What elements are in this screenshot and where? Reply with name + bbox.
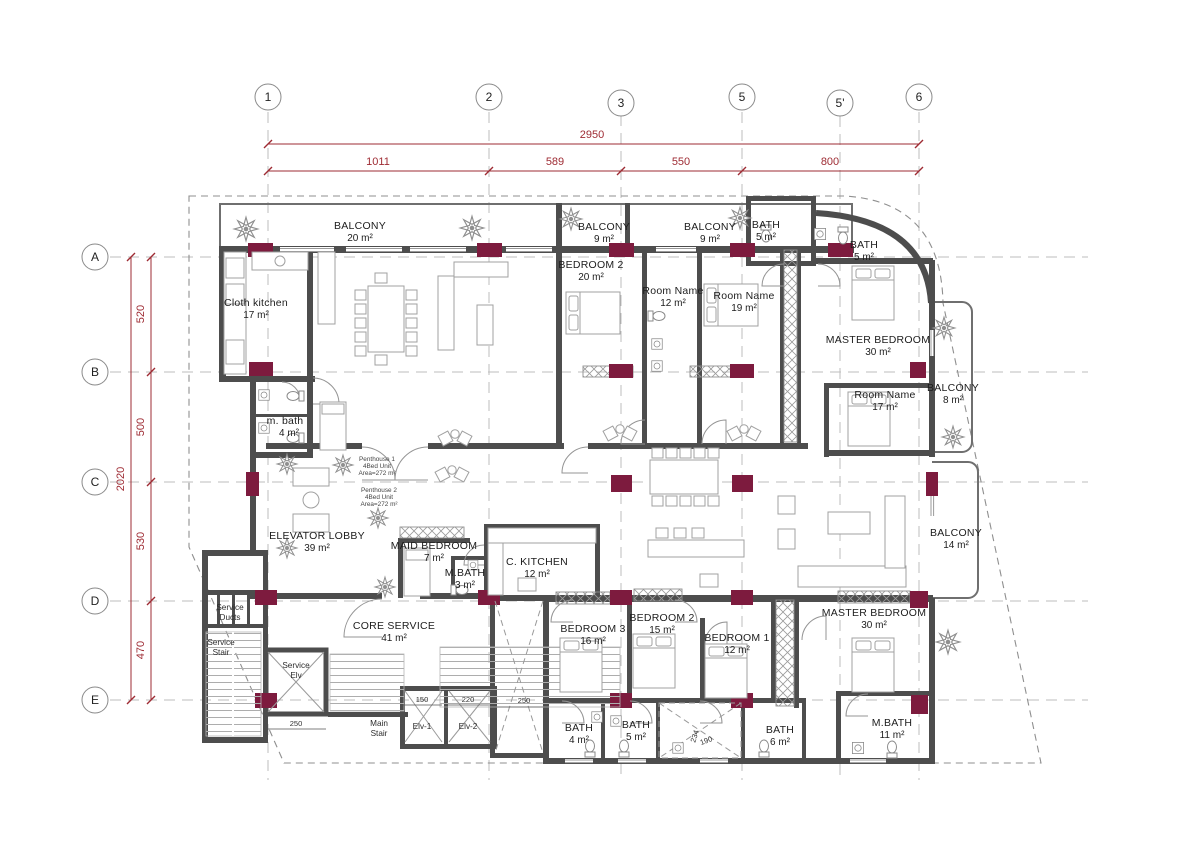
grid-bubble-column-5p: 5' [827, 90, 853, 116]
svg-text:12 m²: 12 m² [660, 298, 686, 309]
service-ducts-label: Service Ducts [216, 603, 244, 622]
grid-bubble-label: E [91, 693, 99, 707]
plant-icon [931, 625, 964, 658]
svg-text:BEDROOM 1: BEDROOM 1 [704, 632, 769, 644]
chair-pair-icon [603, 425, 637, 441]
svg-text:BATH: BATH [752, 219, 780, 231]
dining-table-1 [355, 273, 417, 365]
lobby-seating [293, 468, 329, 532]
toilet-icon [648, 311, 665, 321]
grid-bubble-label: 5 [739, 90, 746, 104]
room-label-bath-4b: BATH 4 m² [565, 722, 593, 746]
svg-text:20 m²: 20 m² [578, 272, 604, 283]
floor-plan-svg: 1 2 3 5 5' 6 A B C D E [0, 0, 1200, 849]
room-label-balcony-20: BALCONY 20 m² [334, 220, 386, 244]
room-label-bath-6: BATH 6 m² [766, 724, 794, 748]
grid-bubbles: 1 2 3 5 5' 6 A B C D E [82, 84, 932, 713]
sink-icon [652, 361, 663, 372]
kitchen-counter-1 [224, 252, 335, 374]
grid-bubble-label: 2 [486, 90, 493, 104]
svg-text:BEDROOM 3: BEDROOM 3 [560, 623, 625, 635]
grid-bubble-label: 6 [916, 90, 923, 104]
bed-icon [852, 266, 894, 320]
svg-text:BEDROOM 2: BEDROOM 2 [558, 259, 623, 271]
grid-bubble-label: D [91, 594, 100, 608]
svg-text:BALCONY: BALCONY [930, 527, 982, 539]
svg-text:5 m²: 5 m² [626, 732, 647, 743]
svg-text:BALCONY: BALCONY [684, 221, 736, 233]
room-label-master-bedroom-top: MASTER BEDROOM 30 m² [826, 334, 930, 358]
kitchen-island-2 [648, 528, 744, 587]
svg-text:MASTER BEDROOM: MASTER BEDROOM [822, 607, 926, 619]
svg-text:15 m²: 15 m² [649, 625, 675, 636]
svg-text:Ducts: Ducts [220, 613, 241, 622]
dim-left-seg-3: 530 [135, 532, 147, 550]
room-label-balcony-14: BALCONY 14 m² [930, 527, 982, 551]
main-stair-flight-1 [330, 654, 404, 711]
svg-text:8 m²: 8 m² [943, 395, 964, 406]
penthouse2-note: Penthouse 2 4Bed Unit Area=272 m² [360, 487, 397, 508]
chair-pair-icon [727, 425, 761, 441]
svg-text:MASTER BEDROOM: MASTER BEDROOM [826, 334, 930, 346]
grid-bubble-row-d: D [82, 588, 108, 614]
bed-icon [852, 638, 894, 692]
toilet-icon [838, 227, 848, 244]
svg-text:9 m²: 9 m² [700, 234, 721, 245]
svg-text:Cloth kitchen: Cloth kitchen [224, 297, 288, 309]
dim-left-total: 2020 [115, 467, 127, 491]
dim-top-seg-3: 550 [672, 156, 690, 168]
sink-icon [852, 742, 863, 753]
room-label-bath-5c: BATH 5 m² [622, 719, 650, 743]
toilet-icon [759, 740, 769, 757]
svg-text:39 m²: 39 m² [304, 543, 330, 554]
plant-icon [455, 211, 488, 244]
svg-text:Room Name: Room Name [713, 290, 774, 302]
elv1-label: Elv-1 [413, 722, 432, 731]
plant-icon [329, 451, 357, 479]
room-label-roomname-12: Room Name 12 m² [642, 285, 703, 309]
room-label-m-bath-4: m. bath 4 m² [267, 415, 304, 439]
svg-text:BATH: BATH [850, 239, 878, 251]
svg-text:41 m²: 41 m² [381, 633, 407, 644]
main-stair-label: Main Stair [370, 719, 388, 738]
dining-table-2 [650, 448, 719, 506]
detail-dim-250a: 250 [290, 719, 303, 728]
svg-text:30 m²: 30 m² [865, 347, 891, 358]
dim-top-seg-1: 1011 [366, 156, 390, 168]
svg-text:4Bed Unit: 4Bed Unit [363, 463, 391, 470]
room-label-core-service: CORE SERVICE 41 m² [353, 620, 435, 644]
svg-text:4 m²: 4 m² [569, 735, 590, 746]
grid-bubble-label: B [91, 365, 99, 379]
svg-text:Stair: Stair [371, 729, 388, 738]
chair-pair-icon [435, 466, 469, 482]
svg-text:BATH: BATH [622, 719, 650, 731]
svg-text:5 m²: 5 m² [756, 232, 777, 243]
svg-text:BATH: BATH [565, 722, 593, 734]
svg-text:Room Name: Room Name [854, 389, 915, 401]
svg-text:BALCONY: BALCONY [334, 220, 386, 232]
plant-icon [364, 504, 392, 532]
svg-text:6 m²: 6 m² [770, 737, 791, 748]
svg-text:11 m²: 11 m² [880, 730, 905, 741]
grid-bubble-label: A [91, 250, 99, 264]
svg-text:Area=272 m²: Area=272 m² [358, 470, 395, 477]
single-bed-icon [320, 402, 346, 450]
dimension-labels: 2950 1011 589 550 800 2020 520 500 530 4… [115, 129, 839, 659]
svg-text:Service: Service [207, 638, 235, 647]
room-label-master-bedroom-bottom: MASTER BEDROOM 30 m² [822, 607, 926, 631]
grid-bubble-label: 5' [836, 96, 845, 110]
room-label-c-kitchen: C. KITCHEN 12 m² [506, 556, 568, 580]
svg-text:M.BATH: M.BATH [445, 567, 485, 579]
svg-text:Elv: Elv [290, 671, 302, 680]
svg-text:20 m²: 20 m² [347, 233, 373, 244]
svg-text:4Bed Unit: 4Bed Unit [365, 494, 393, 501]
grid-bubble-column-1: 1 [255, 84, 281, 110]
grid-bubble-label: C [91, 475, 100, 489]
service-elv-label: Service Elv [282, 661, 310, 680]
grid-bubble-row-a: A [82, 244, 108, 270]
bed-icon [566, 292, 620, 334]
svg-text:ELEVATOR LOBBY: ELEVATOR LOBBY [269, 530, 365, 542]
dim-top-seg-2: 589 [546, 156, 564, 168]
svg-text:17 m²: 17 m² [872, 402, 898, 413]
detail-dim-220: 220 [462, 695, 475, 704]
svg-text:19 m²: 19 m² [731, 303, 757, 314]
svg-text:Penthouse 2: Penthouse 2 [361, 487, 397, 494]
sofa-set-2 [778, 496, 906, 587]
room-label-bath-5b: BATH 5 m² [850, 239, 878, 263]
grid-bubble-label: 3 [618, 96, 625, 110]
svg-text:Service: Service [282, 661, 310, 670]
bed-icon [633, 634, 675, 688]
svg-text:17 m²: 17 m² [243, 310, 269, 321]
sink-icon [814, 228, 825, 239]
dim-top-total: 2950 [580, 129, 604, 141]
dim-left-seg-2: 500 [135, 418, 147, 436]
plant-icon [229, 212, 262, 245]
svg-text:Penthouse 1: Penthouse 1 [359, 456, 395, 463]
svg-text:C. KITCHEN: C. KITCHEN [506, 556, 568, 568]
grid-bubble-column-5: 5 [729, 84, 755, 110]
svg-text:12 m²: 12 m² [524, 569, 550, 580]
floor-plan-sheet: 1 2 3 5 5' 6 A B C D E [0, 0, 1200, 849]
sink-icon [592, 712, 603, 723]
sofa-set-1 [438, 262, 508, 350]
grid-bubble-column-3: 3 [608, 90, 634, 116]
svg-text:BATH: BATH [766, 724, 794, 736]
svg-text:BALCONY: BALCONY [927, 382, 979, 394]
small-light-well [659, 703, 741, 758]
svg-text:Area=272 m²: Area=272 m² [360, 501, 397, 508]
toilet-icon [287, 391, 304, 401]
sink-icon [652, 339, 663, 350]
svg-text:16 m²: 16 m² [580, 636, 606, 647]
room-label-balcony-9b: BALCONY 9 m² [684, 221, 736, 245]
plant-icon [938, 422, 969, 453]
sink-icon [259, 390, 270, 401]
svg-text:M.BATH: M.BATH [872, 717, 912, 729]
svg-text:5 m²: 5 m² [854, 252, 875, 263]
sink-icon [611, 716, 622, 727]
grid-bubble-column-2: 2 [476, 84, 502, 110]
svg-text:9 m²: 9 m² [594, 234, 615, 245]
grid-bubble-label: 1 [265, 90, 272, 104]
room-label-balcony-9a: BALCONY 9 m² [578, 221, 630, 245]
dim-left-seg-1: 520 [135, 305, 147, 323]
detail-dim-190: 190 [699, 734, 714, 747]
svg-text:BALCONY: BALCONY [578, 221, 630, 233]
svg-text:BEDROOM 2: BEDROOM 2 [629, 612, 694, 624]
toilet-icon [887, 741, 897, 758]
grid-bubble-row-e: E [82, 687, 108, 713]
svg-text:Room Name: Room Name [642, 285, 703, 297]
dim-top-seg-4: 800 [821, 156, 839, 168]
svg-text:Stair: Stair [213, 648, 230, 657]
grid-bubble-row-b: B [82, 359, 108, 385]
elv2-label: Elv-2 [459, 722, 478, 731]
svg-text:MAID BEDROOM: MAID BEDROOM [391, 540, 477, 552]
room-label-mbath-11: M.BATH 11 m² [872, 717, 912, 741]
svg-text:4 m²: 4 m² [279, 428, 300, 439]
svg-text:7 m²: 7 m² [424, 553, 445, 564]
grid-bubble-row-c: C [82, 469, 108, 495]
svg-text:m. bath: m. bath [267, 415, 304, 427]
svg-text:30 m²: 30 m² [861, 620, 887, 631]
penthouse1-note: Penthouse 1 4Bed Unit Area=272 m² [358, 456, 395, 477]
svg-text:Main: Main [370, 719, 388, 728]
grid-bubble-column-6: 6 [906, 84, 932, 110]
room-label-elevator-lobby: ELEVATOR LOBBY 39 m² [269, 530, 365, 554]
svg-text:Service: Service [216, 603, 244, 612]
detail-dim-150: 150 [416, 695, 429, 704]
svg-text:14 m²: 14 m² [943, 540, 969, 551]
svg-text:CORE SERVICE: CORE SERVICE [353, 620, 435, 632]
svg-text:12 m²: 12 m² [724, 645, 750, 656]
svg-text:3 m²: 3 m² [455, 580, 476, 591]
sink-icon [673, 743, 684, 754]
detail-dim-250b: 250 [518, 696, 531, 705]
room-label-bedroom2-top: BEDROOM 2 20 m² [558, 259, 623, 283]
dim-left-seg-4: 470 [135, 641, 147, 659]
room-label-bedroom2-bottom: BEDROOM 2 15 m² [629, 612, 694, 636]
